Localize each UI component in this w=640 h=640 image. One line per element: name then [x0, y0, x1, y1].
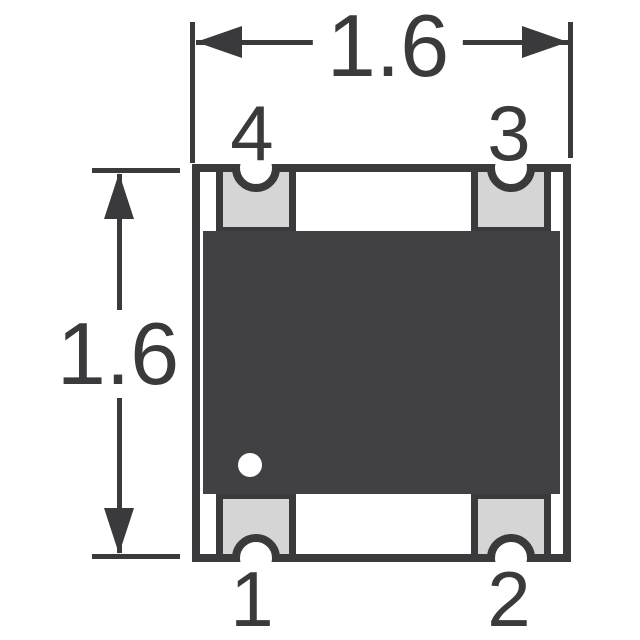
pin-label-4: 4 [230, 94, 273, 172]
package-drawing: 1.6 1.6 4 3 1 2 [0, 0, 640, 640]
height-dimension-label: 1.6 [47, 310, 189, 398]
pin1-indicator-dot-icon [238, 453, 262, 477]
pin-label-1: 1 [230, 560, 273, 638]
height-extension-line-bottom [92, 554, 180, 559]
height-arrowhead-top-icon [104, 173, 134, 219]
width-extension-line-right [568, 22, 573, 158]
height-arrowhead-bottom-icon [104, 508, 134, 554]
width-dimension-label: 1.6 [313, 2, 463, 90]
width-arrowhead-left-icon [196, 26, 242, 58]
package-outline [192, 164, 571, 562]
pin-label-3: 3 [487, 94, 530, 172]
pin-label-2: 2 [487, 560, 530, 638]
width-extension-line-left [190, 22, 195, 163]
width-arrowhead-right-icon [522, 26, 568, 58]
pad-4 [216, 172, 296, 234]
pad-1 [216, 492, 296, 554]
pad-2 [471, 492, 551, 554]
pad-3 [471, 172, 551, 234]
